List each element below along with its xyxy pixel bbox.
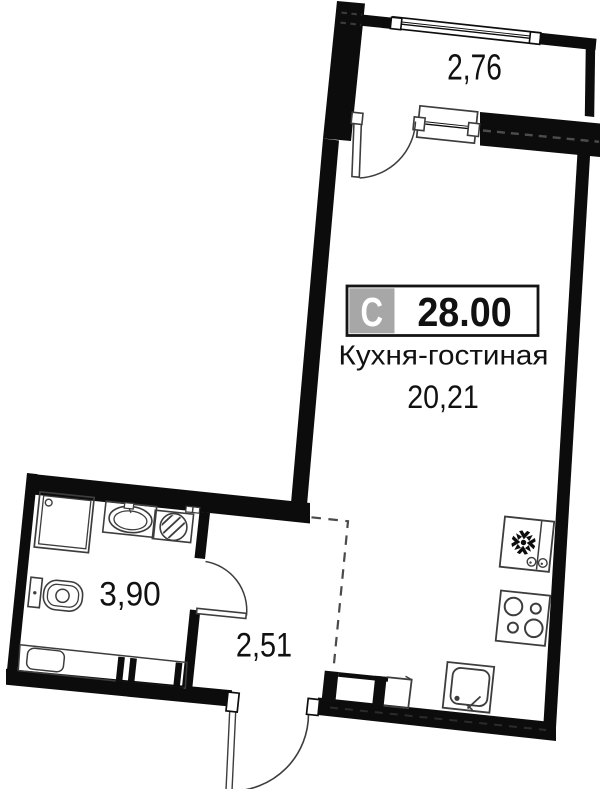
svg-text:20,21: 20,21 — [407, 379, 479, 415]
svg-text:28.00: 28.00 — [417, 290, 511, 336]
svg-text:2,51: 2,51 — [236, 625, 292, 664]
svg-text:С: С — [361, 289, 384, 335]
svg-text:Кухня-гостиная: Кухня-гостиная — [339, 340, 549, 371]
svg-text:2,76: 2,76 — [447, 47, 502, 87]
svg-text:3,90: 3,90 — [99, 574, 161, 612]
